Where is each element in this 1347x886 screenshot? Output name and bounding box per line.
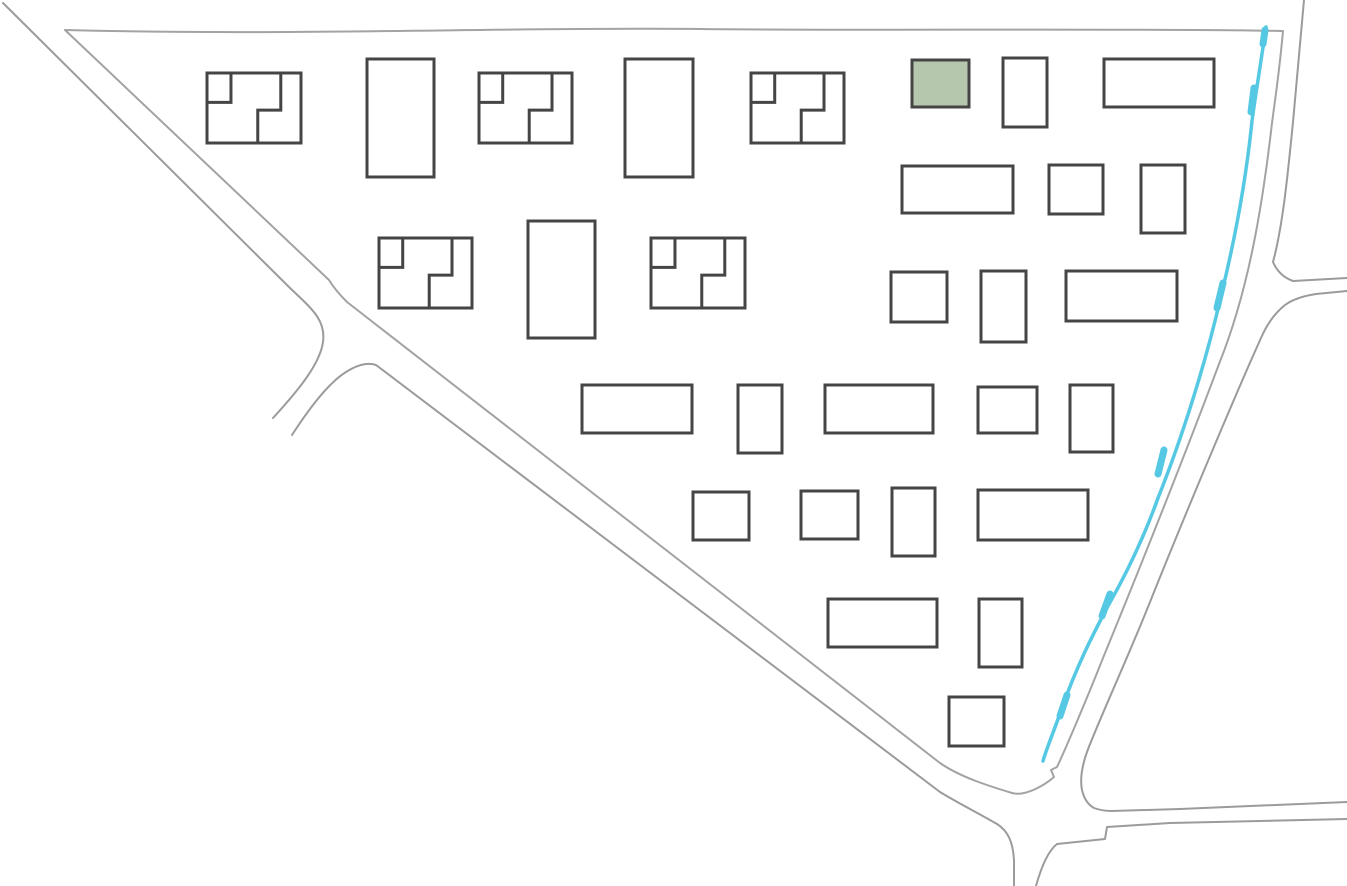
building-outline[interactable]	[528, 221, 595, 338]
duplex-building-footprint[interactable]	[751, 73, 844, 143]
building-footprint[interactable]	[625, 59, 693, 177]
duplex-building-footprint[interactable]	[479, 73, 572, 143]
building-footprint[interactable]	[892, 488, 935, 556]
building-outline[interactable]	[582, 385, 692, 433]
building-footprint[interactable]	[528, 221, 595, 338]
duplex-building-footprint[interactable]	[651, 238, 745, 308]
duplex-building-footprint[interactable]	[207, 73, 301, 143]
selected-building[interactable]	[912, 60, 969, 107]
building-outline[interactable]	[1003, 58, 1047, 127]
building-outline[interactable]	[1141, 165, 1185, 233]
building-footprint[interactable]	[1141, 165, 1185, 233]
selected-building-outline[interactable]	[912, 60, 969, 107]
building-footprint[interactable]	[693, 492, 749, 540]
building-outline[interactable]	[367, 59, 434, 177]
building-outline[interactable]	[978, 490, 1088, 540]
road-edge-4	[1081, 291, 1347, 811]
building-outline[interactable]	[981, 271, 1026, 342]
building-outline[interactable]	[751, 73, 844, 143]
road-edge-3	[1273, 0, 1347, 281]
building-outline[interactable]	[902, 166, 1013, 213]
building-outline[interactable]	[978, 387, 1037, 433]
site-map-canvas[interactable]	[0, 0, 1347, 886]
building-footprint[interactable]	[978, 490, 1088, 540]
building-outline[interactable]	[949, 697, 1004, 746]
building-outline[interactable]	[651, 238, 745, 308]
building-footprint[interactable]	[981, 271, 1026, 342]
building-outline[interactable]	[738, 385, 782, 453]
river-wide-spot-6	[1060, 695, 1067, 716]
building-outline[interactable]	[828, 599, 937, 647]
river-wide-spot-2	[1251, 88, 1254, 112]
site-map-svg[interactable]	[0, 0, 1347, 886]
building-outline[interactable]	[979, 599, 1022, 667]
building-footprint[interactable]	[367, 59, 434, 177]
buildings-layer	[207, 58, 1214, 746]
river-wide-spot-5	[1102, 594, 1110, 616]
building-outline[interactable]	[625, 59, 693, 177]
building-footprint[interactable]	[1003, 58, 1047, 127]
building-footprint[interactable]	[828, 599, 937, 647]
building-footprint[interactable]	[978, 387, 1037, 433]
building-outline[interactable]	[891, 272, 947, 322]
building-footprint[interactable]	[979, 599, 1022, 667]
building-footprint[interactable]	[1066, 271, 1177, 321]
building-outline[interactable]	[892, 488, 935, 556]
building-footprint[interactable]	[825, 385, 933, 433]
building-footprint[interactable]	[801, 491, 858, 539]
building-footprint[interactable]	[891, 272, 947, 322]
road-edge-5	[1036, 819, 1347, 886]
building-footprint[interactable]	[582, 385, 692, 433]
duplex-building-footprint[interactable]	[379, 238, 472, 308]
building-outline[interactable]	[1104, 59, 1214, 107]
building-outline[interactable]	[479, 73, 572, 143]
river-wide-spot-3	[1217, 283, 1223, 308]
building-outline[interactable]	[693, 492, 749, 540]
building-footprint[interactable]	[1104, 59, 1214, 107]
building-footprint[interactable]	[949, 697, 1004, 746]
building-footprint[interactable]	[902, 166, 1013, 213]
river-wide-spot-4	[1158, 450, 1164, 474]
river-wide-spot-1	[1263, 30, 1265, 44]
building-outline[interactable]	[801, 491, 858, 539]
building-outline[interactable]	[1049, 165, 1103, 214]
building-footprint[interactable]	[1070, 385, 1113, 452]
building-outline[interactable]	[1070, 385, 1113, 452]
building-outline[interactable]	[1066, 271, 1177, 321]
building-footprint[interactable]	[738, 385, 782, 453]
road-edge-1	[3, 3, 323, 418]
building-outline[interactable]	[207, 73, 301, 143]
building-outline[interactable]	[825, 385, 933, 433]
building-outline[interactable]	[379, 238, 472, 308]
building-footprint[interactable]	[1049, 165, 1103, 214]
